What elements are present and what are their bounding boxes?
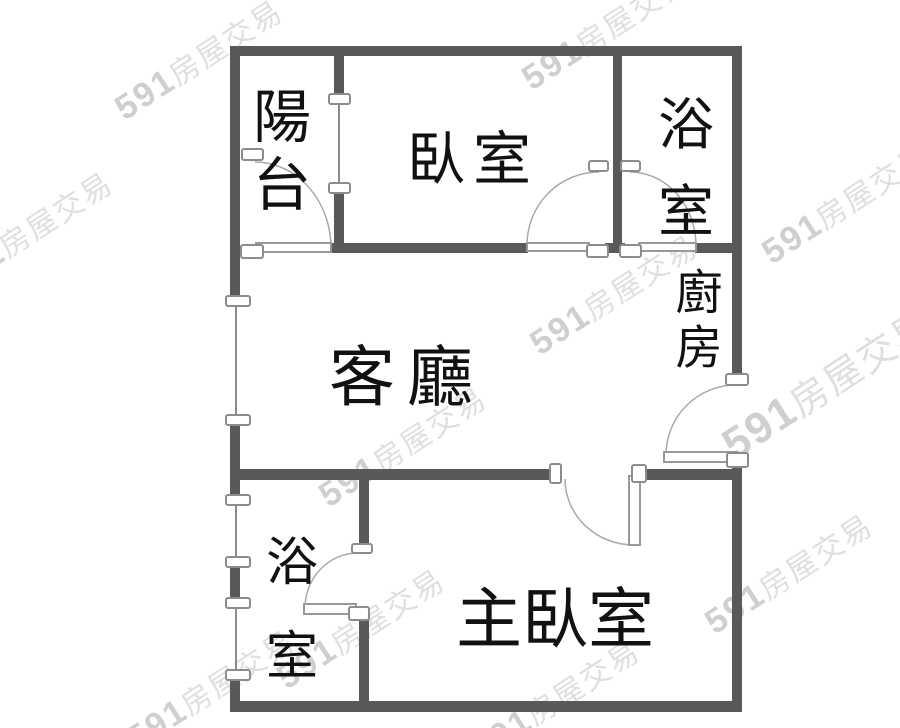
master-door-leaf [629,476,640,545]
window-tick [329,183,350,193]
bedroom-door-cap [589,161,608,171]
window-tick [226,557,250,567]
window-tick [226,598,250,608]
wall-mid-left [332,243,528,253]
wall-bath2-east-lower [359,619,369,707]
room-label-bathroom-bottom: 浴室 [264,516,320,704]
bathroom-top-door-hinge [620,245,641,257]
room-label-balcony: 陽台 [251,84,313,220]
room-label-living-room: 客廳 [329,324,485,420]
kitchen-door-arc [666,385,736,455]
wall-bath2-east-upper [359,469,369,546]
room-label-bedroom: 臥室 [407,112,539,196]
wall-bedroom-east [613,46,622,253]
wall-lower-right [644,469,742,480]
wall-top [230,46,742,56]
room-label-master-bedroom: 主臥室 [456,566,654,662]
window-tick [226,670,250,680]
window-tick [226,495,250,505]
window-tick [329,94,350,104]
wall-left-mid [230,420,240,500]
room-label-kitchen: 廚房 [674,265,724,375]
master-door-arc [565,479,634,545]
balcony-door-leaf [256,243,331,252]
floorplan-canvas: 陽台 臥室 浴室 客廳 廚房 浴室 主臥室 591房屋交易 591房屋交易 59… [0,0,900,728]
wall-balcony-east-upper [334,46,344,99]
room-label-bathroom-top: 浴室 [656,81,716,255]
wall-right-lower [732,468,742,712]
window-tick [226,415,250,425]
bathroom-bottom-door-cap [352,544,372,553]
bedroom-door-hinge [587,245,608,257]
wall-left-upper [230,46,240,302]
master-door-jamb [550,464,561,483]
master-door-hinge [632,465,646,482]
bathroom-top-door-cap [621,161,640,171]
kitchen-door-cap [726,374,748,385]
wall-right-upper [732,46,742,378]
wall-lower-left [230,469,551,480]
bedroom-door-leaf [527,243,589,251]
bathroom-bottom-door-hinge [349,607,369,620]
balcony-door-hinge [241,245,263,258]
window-tick [226,296,250,306]
kitchen-door-hinge [727,453,748,467]
